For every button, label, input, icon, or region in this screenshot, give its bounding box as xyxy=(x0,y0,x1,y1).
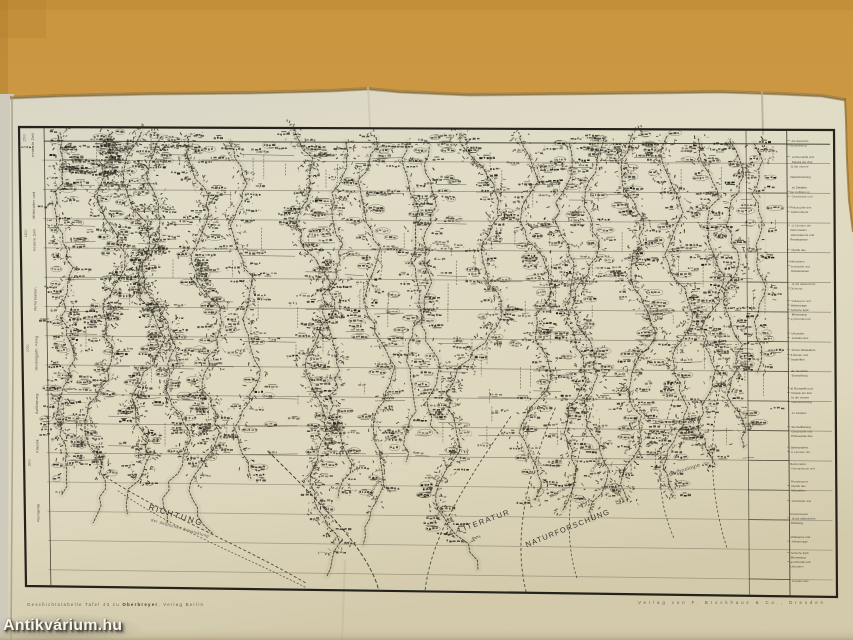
svg-text:Volksepos und: Volksepos und xyxy=(791,299,811,303)
svg-text:Dichtung: Dichtung xyxy=(790,287,802,291)
svg-text:Klassik der Zeit: Klassik der Zeit xyxy=(792,160,813,164)
svg-text:neuere Zeit: neuere Zeit xyxy=(32,228,37,251)
svg-text:c) Literatur der: c) Literatur der xyxy=(792,224,812,228)
svg-text:Naturforschung: Naturforschung xyxy=(790,175,811,179)
svg-text:a) Romantik und: a) Romantik und xyxy=(792,155,814,159)
svg-text:Annalen des: Annalen des xyxy=(792,336,809,340)
svg-text:Geschichte und: Geschichte und xyxy=(791,430,812,434)
svg-text:Minnesang: Minnesang xyxy=(791,555,806,559)
svg-text:1600: 1600 xyxy=(24,230,28,238)
svg-text:Philosophie des: Philosophie des xyxy=(790,206,812,210)
svg-text:Geschichte und: Geschichte und xyxy=(792,195,813,199)
svg-text:Mittelalters: Mittelalters xyxy=(791,489,806,493)
svg-text:Heldensage: Heldensage xyxy=(792,540,808,544)
svg-text:Mystik des: Mystik des xyxy=(792,484,807,488)
svg-text:Mystik des: Mystik des xyxy=(792,248,807,252)
svg-text:Dichtung: Dichtung xyxy=(791,521,803,525)
svg-text:die deutsche: die deutsche xyxy=(791,369,808,373)
svg-text:d) die altdeutsche: d) die altdeutsche xyxy=(792,282,816,286)
svg-text:1700: 1700 xyxy=(26,344,30,352)
svg-text:b) die neuere: b) die neuere xyxy=(791,164,809,168)
svg-text:e) Chronik und: e) Chronik und xyxy=(791,560,811,564)
svg-text:d) die altdeutsche: d) die altdeutsche xyxy=(792,516,816,520)
svg-text:Reformation: Reformation xyxy=(791,228,808,232)
svg-text:1800: 1800 xyxy=(28,459,32,467)
svg-text:Scholastik und: Scholastik und xyxy=(792,499,812,503)
svg-text:Minnesang: Minnesang xyxy=(792,313,807,317)
svg-text:Klassik: Klassik xyxy=(35,439,40,453)
svg-text:Heldensage: Heldensage xyxy=(791,303,807,307)
svg-text:Urkunden: Urkunden xyxy=(791,565,804,569)
svg-text:Entwicklung: Entwicklung xyxy=(792,374,808,378)
svg-text:im Zeitalter: im Zeitalter xyxy=(792,411,807,415)
svg-text:b) die neuere: b) die neuere xyxy=(791,396,809,400)
svg-text:f) Runen und: f) Runen und xyxy=(791,353,809,357)
svg-text:der Aufklarung: der Aufklarung xyxy=(790,190,810,194)
svg-text:im Zeitalter: im Zeitalter xyxy=(792,186,807,190)
svg-text:Humanismus und: Humanismus und xyxy=(791,233,815,237)
svg-text:die deutsche: die deutsche xyxy=(792,139,809,143)
svg-text:fruhen Mittelalters: fruhen Mittelalters xyxy=(792,348,816,352)
svg-text:Scholastik und: Scholastik und xyxy=(790,264,810,268)
svg-text:Mittelalter und: Mittelalter und xyxy=(31,191,36,218)
svg-text:neueste Zeit: neueste Zeit xyxy=(30,132,35,157)
svg-text:Reformation: Reformation xyxy=(32,287,37,310)
svg-text:Romantik: Romantik xyxy=(36,504,41,522)
svg-text:Aufklarung: Aufklarung xyxy=(34,393,39,414)
svg-text:Klassik der Zeit: Klassik der Zeit xyxy=(791,391,812,395)
svg-text:Renaissance: Renaissance xyxy=(790,237,808,241)
svg-text:a) Romantik und: a) Romantik und xyxy=(791,386,813,390)
svg-text:Jahrhunderts: Jahrhunderts xyxy=(791,446,809,450)
svg-text:dreissigjahr. Krieg: dreissigjahr. Krieg xyxy=(33,336,38,371)
svg-text:Humanismus und: Humanismus und xyxy=(792,466,816,470)
svg-text:Annalen des: Annalen des xyxy=(792,579,809,583)
svg-text:Entwicklung: Entwicklung xyxy=(791,144,807,148)
svg-text:hofische Epik: hofische Epik xyxy=(791,308,809,312)
svg-text:Urkunden: Urkunden xyxy=(791,332,804,336)
svg-text:Geschichtstabelle Tafel 43 zu: Geschichtstabelle Tafel 43 zu Oberbreyer… xyxy=(27,602,204,607)
svg-text:der Aufklarung: der Aufklarung xyxy=(791,425,811,429)
svg-text:Renaissance: Renaissance xyxy=(791,479,809,483)
svg-text:c) Literatur der: c) Literatur der xyxy=(791,450,811,454)
svg-text:Mittelalters: Mittelalters xyxy=(790,260,805,264)
svg-text:e) Chronik und: e) Chronik und xyxy=(791,317,811,321)
svg-text:Klosterwesen: Klosterwesen xyxy=(790,512,808,516)
svg-text:Naturforschung: Naturforschung xyxy=(791,400,812,404)
svg-text:Volksepos und: Volksepos und xyxy=(791,535,811,539)
svg-text:1500: 1500 xyxy=(23,134,27,142)
svg-text:Klosterwesen: Klosterwesen xyxy=(791,269,809,273)
svg-text:Philosophie des: Philosophie des xyxy=(791,434,813,438)
svg-text:hofische Epik: hofische Epik xyxy=(791,551,809,555)
svg-text:Inschriften: Inschriften xyxy=(791,357,805,361)
svg-text:Reformation: Reformation xyxy=(790,462,807,466)
svg-text:Jahrhunderts: Jahrhunderts xyxy=(791,210,809,214)
